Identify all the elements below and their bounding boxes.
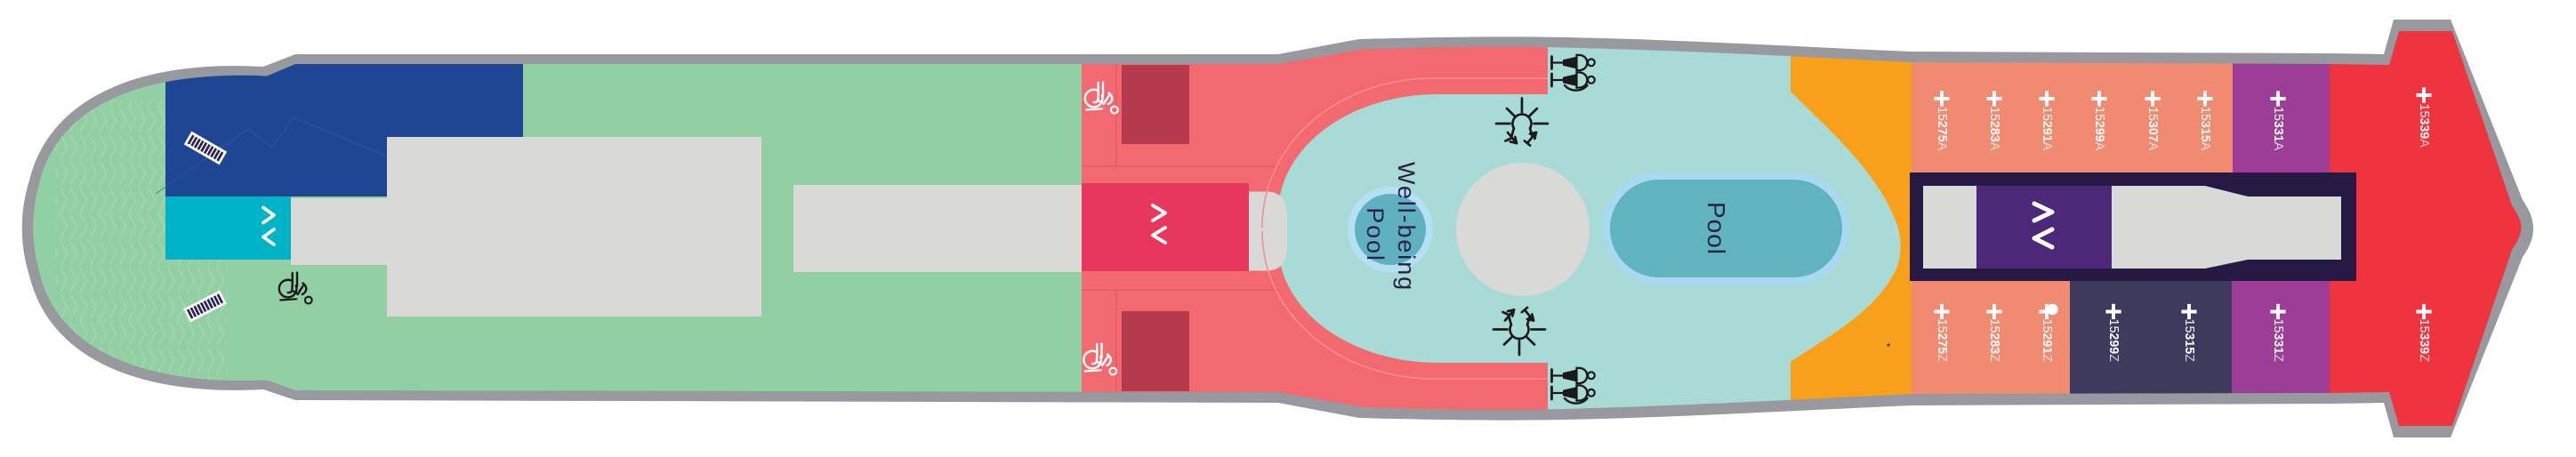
svg-text:15339A: 15339A [2417, 104, 2431, 148]
svg-text:Pool: Pool [1703, 202, 1730, 255]
svg-text:15299A: 15299A [2092, 107, 2106, 151]
svg-text:15299Z: 15299Z [2106, 319, 2121, 363]
svg-text:15315A: 15315A [2198, 107, 2212, 151]
svg-text:15331A: 15331A [2271, 107, 2285, 151]
svg-text:15275Z: 15275Z [1935, 319, 1949, 363]
svg-text:15339Z: 15339Z [2417, 319, 2431, 363]
svg-text:15291Z: 15291Z [2040, 319, 2054, 363]
svg-text:15331Z: 15331Z [2271, 319, 2285, 363]
svg-text:15291A: 15291A [2040, 107, 2054, 151]
svg-text:15275A: 15275A [1935, 107, 1949, 151]
svg-text:15315Z: 15315Z [2182, 319, 2196, 363]
svg-text:15307A: 15307A [2145, 107, 2160, 151]
svg-text:15283Z: 15283Z [1987, 319, 2001, 363]
svg-text:15283A: 15283A [1987, 107, 2001, 151]
